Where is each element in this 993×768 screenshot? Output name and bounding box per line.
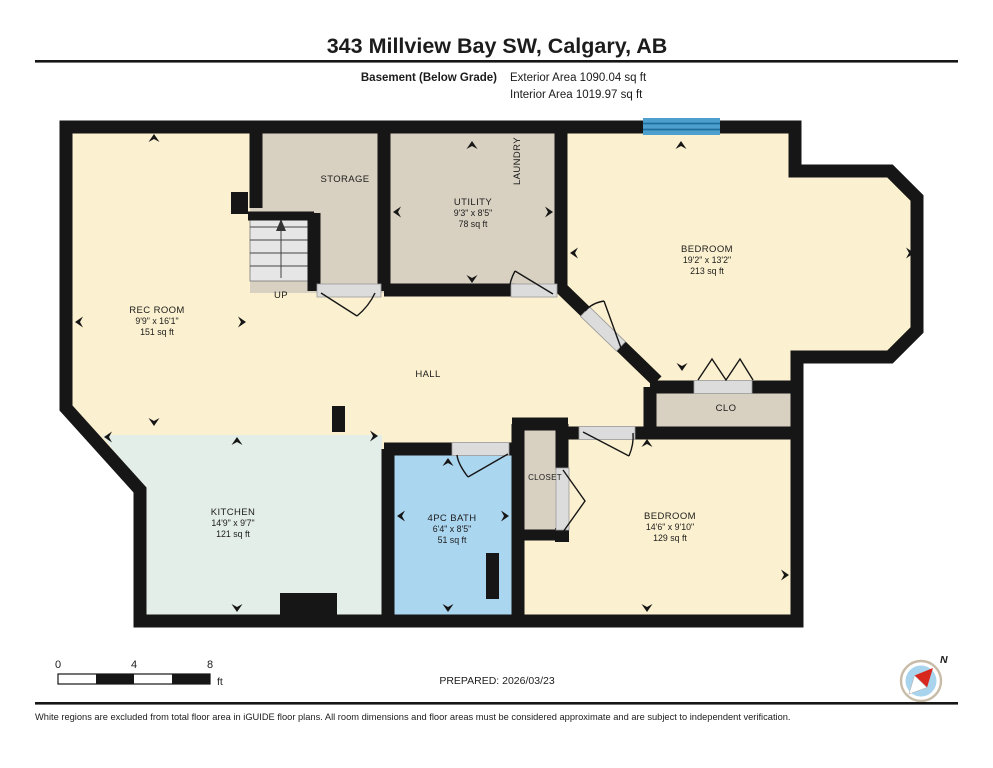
floor-label: Basement (Below Grade)	[361, 72, 497, 84]
label-rec-room-area: 151 sq ft	[140, 327, 174, 337]
label-bedroom-bottom-area: 129 sq ft	[653, 533, 687, 543]
label-bedroom-bottom: BEDROOM	[644, 511, 696, 522]
disclaimer-text: White regions are excluded from total fl…	[35, 712, 791, 722]
label-laundry: LAUNDRY	[512, 137, 523, 185]
scale-start-label: 0	[55, 659, 61, 671]
label-utility-area: 78 sq ft	[459, 219, 488, 229]
stub-rec-storage	[231, 192, 248, 214]
exterior-area-label: Exterior Area 1090.04 sq ft	[510, 72, 647, 84]
door-opening-storage	[317, 284, 381, 297]
interior-area-label: Interior Area 1019.97 sq ft	[510, 89, 643, 101]
door-opening-bath	[452, 443, 509, 456]
scale-mid-label: 4	[131, 659, 137, 671]
label-storage: STORAGE	[320, 174, 369, 185]
compass-icon: N	[901, 654, 948, 701]
label-closet: CLOSET	[528, 473, 562, 482]
label-bedroom-top-dims: 19'2" x 13'2"	[683, 255, 731, 265]
label-bedroom-bottom-dims: 14'6" x 9'10"	[646, 522, 694, 532]
floorplan-canvas: 343 Millview Bay SW, Calgary, AB Basemen…	[0, 0, 993, 768]
stub-bath	[486, 553, 499, 599]
header-divider	[35, 60, 958, 63]
label-kitchen-area: 121 sq ft	[216, 529, 250, 539]
label-clo: CLO	[716, 403, 737, 414]
door-opening-bedroom-bottom	[579, 427, 635, 440]
prepared-date: PREPARED: 2026/03/23	[439, 675, 555, 687]
label-bath-dims: 6'4" x 8'5"	[433, 524, 471, 534]
label-bath: 4PC BATH	[428, 513, 477, 524]
scale-unit-label: ft	[217, 676, 223, 688]
label-bedroom-top-area: 213 sq ft	[690, 266, 724, 276]
scale-bar: 0 4 8 ft	[55, 659, 223, 688]
compass-north-label: N	[940, 654, 948, 666]
room-fills	[66, 121, 917, 621]
label-kitchen-dims: 14'9" x 9'7"	[211, 518, 254, 528]
label-utility-dims: 9'3" x 8'5"	[454, 208, 492, 218]
door-opening-clo	[694, 381, 752, 394]
scale-end-label: 8	[207, 659, 213, 671]
label-bath-area: 51 sq ft	[438, 535, 467, 545]
label-stairs-up: UP	[274, 290, 288, 301]
page-title: 343 Millview Bay SW, Calgary, AB	[327, 34, 668, 58]
stub-hall	[332, 406, 345, 432]
stub-kitchen-block	[280, 593, 337, 621]
label-bedroom-top: BEDROOM	[681, 244, 733, 255]
label-rec-room-dims: 9'9" x 16'1"	[135, 316, 178, 326]
floorplan-page: 343 Millview Bay SW, Calgary, AB Basemen…	[0, 0, 993, 768]
label-rec-room: REC ROOM	[129, 305, 184, 316]
footer-divider	[35, 702, 958, 705]
window-top-bedroom	[643, 118, 720, 135]
door-opening-utility	[511, 284, 557, 297]
label-hall: HALL	[415, 369, 440, 380]
label-utility: UTILITY	[454, 197, 492, 208]
label-kitchen: KITCHEN	[211, 507, 256, 518]
